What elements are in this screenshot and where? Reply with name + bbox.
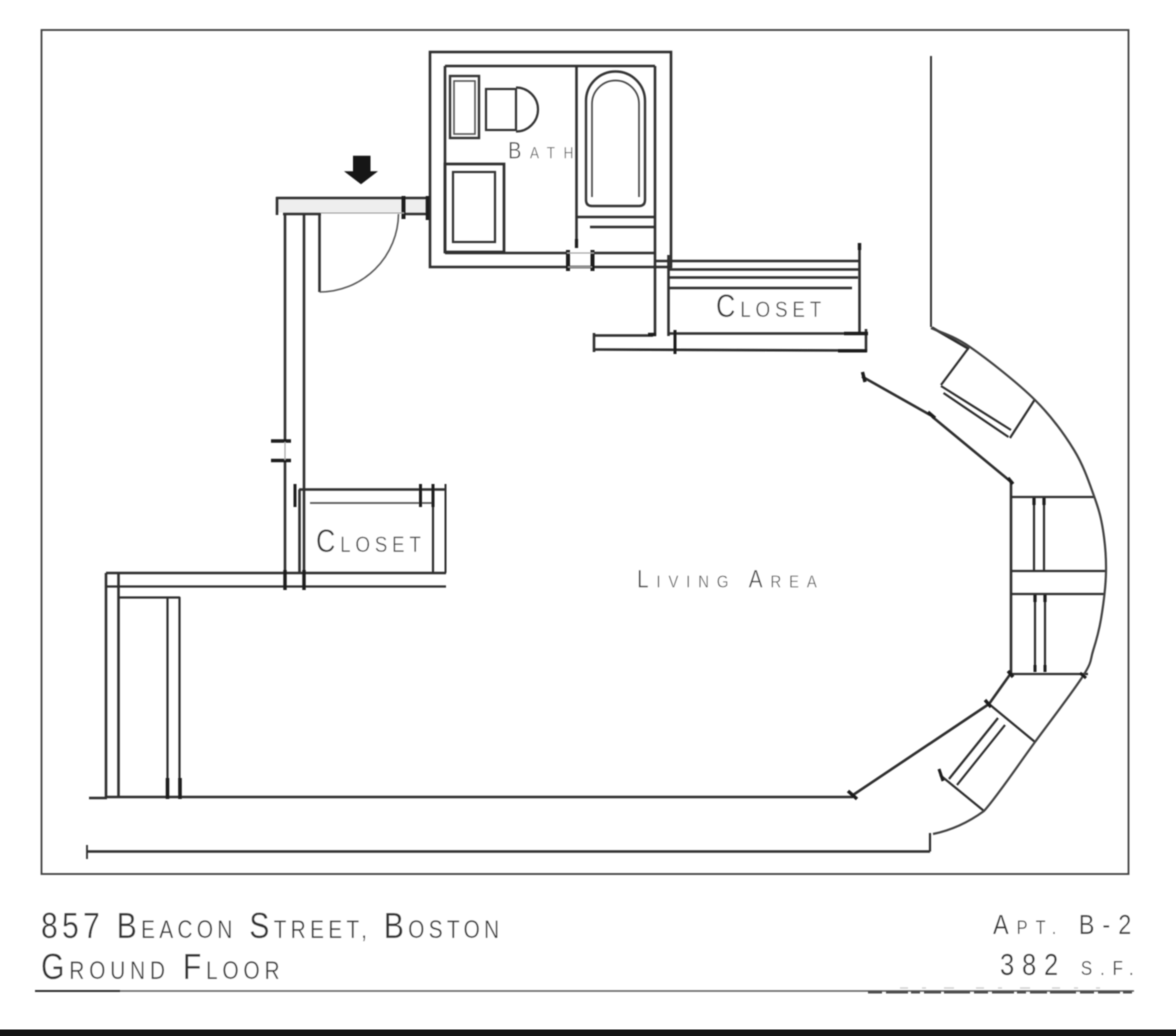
svg-text:APT. B-2: APT. B-2 — [993, 910, 1139, 940]
